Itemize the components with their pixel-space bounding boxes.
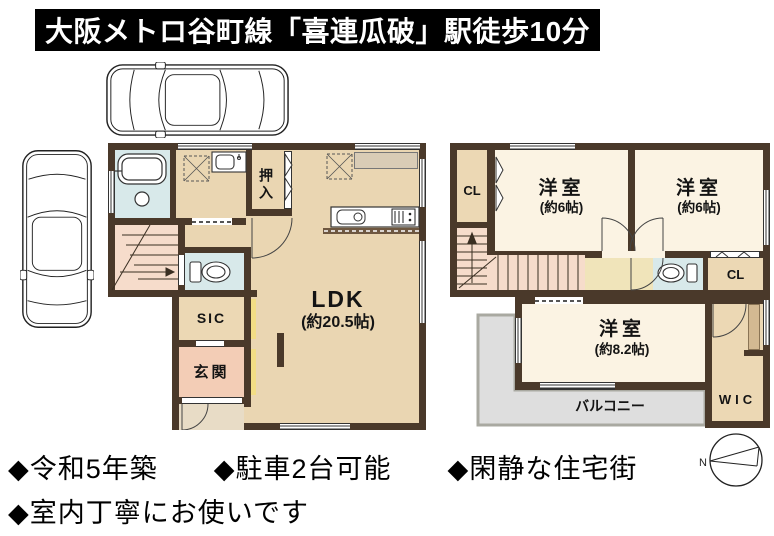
bedroom1-size: (約6帖) [540, 200, 584, 216]
ldk-size: (約20.5帖) [301, 313, 375, 332]
window [178, 143, 252, 150]
feature-line-2: ◆室内丁寧にお使いです [8, 491, 309, 530]
wall [108, 290, 257, 297]
balcony-label: バルコニー [545, 396, 675, 416]
window [510, 143, 575, 150]
toilet-room-2f [653, 258, 703, 290]
car-top-icon [105, 62, 290, 138]
window [355, 143, 420, 150]
bedroom1-name: 洋室 [538, 178, 584, 201]
porch [179, 404, 244, 430]
oshiire-label: 押入 [255, 159, 277, 211]
stairs-1f [115, 225, 178, 290]
kitchen-cupboard [354, 152, 418, 169]
header-banner: 大阪メトロ谷町線「喜連瓜破」駅徒歩10分 [35, 9, 600, 51]
toilet-door [178, 255, 185, 285]
wall [170, 150, 176, 225]
wall [244, 247, 251, 407]
ldk-label: LDK (約20.5帖) [258, 281, 418, 337]
header-title: 大阪メトロ谷町線「喜連瓜破」駅徒歩10分 [45, 10, 590, 50]
window [515, 318, 522, 363]
cl-left-label: CL [457, 181, 487, 199]
closet-folding-door-icon [284, 151, 292, 209]
cl-right-label: CL [708, 262, 763, 286]
wall [487, 150, 495, 251]
open-passage [192, 218, 232, 225]
stairs-2f-run [457, 228, 487, 290]
stairs-2f-landing [487, 255, 585, 290]
accent-strip [251, 349, 256, 395]
open-passage [535, 297, 583, 304]
ldk-name: LDK [311, 286, 364, 314]
wall [628, 150, 635, 251]
closet-folding-door-icon [710, 251, 760, 258]
window [763, 190, 770, 245]
entrance-door [182, 397, 242, 404]
compass-icon: N [698, 430, 770, 494]
wic-label: WIC [712, 389, 763, 409]
bedroom3-name: 洋室 [599, 319, 645, 342]
hallway-2f [585, 258, 653, 290]
window [419, 241, 426, 323]
floorplan-flyer: 大阪メトロ谷町線「喜連瓜破」駅徒歩10分 [0, 0, 774, 536]
window [419, 159, 426, 207]
wall [108, 218, 192, 225]
bedroom2-label: 洋室 (約6帖) [635, 171, 763, 223]
wall [246, 150, 252, 216]
bedroom2-name: 洋室 [676, 178, 722, 201]
sic-label: SIC [179, 308, 244, 328]
genkan-label: 玄関 [179, 361, 244, 381]
compass-north-label: N [699, 457, 707, 469]
car-left-icon [20, 148, 94, 330]
accent-strip [251, 299, 256, 339]
window [763, 300, 770, 345]
floor2-plan: CL 洋室 (約6帖) 洋室 (約6帖) CL 洋室 (約8.2帖) バルコニー… [450, 143, 770, 428]
window [540, 382, 615, 390]
door-opening [602, 251, 635, 258]
floor1-plan: 押入 LDK (約20.5帖) SIC 玄関 [108, 143, 426, 430]
wall [172, 290, 179, 430]
door-opening [632, 251, 665, 258]
feature-line-1: ◆令和5年築 ◆駐車2台可能 ◆閑静な住宅街 [8, 447, 637, 486]
window [108, 171, 115, 213]
partition-stub [744, 350, 763, 356]
genkan-door [196, 340, 224, 347]
wall [232, 218, 246, 225]
window [280, 423, 350, 430]
bedroom1-label: 洋室 (約6帖) [495, 171, 628, 223]
toilet-room-1f [185, 253, 244, 290]
bedroom3-size: (約8.2帖) [595, 342, 650, 358]
bathroom [115, 150, 170, 218]
bedroom3-label: 洋室 (約8.2帖) [542, 311, 702, 366]
partition-stub [277, 333, 284, 367]
car-left-wrap [20, 148, 94, 330]
exterior-cutout [108, 297, 172, 430]
wic-shelf [748, 304, 760, 350]
bedroom2-size: (約6帖) [677, 200, 721, 216]
